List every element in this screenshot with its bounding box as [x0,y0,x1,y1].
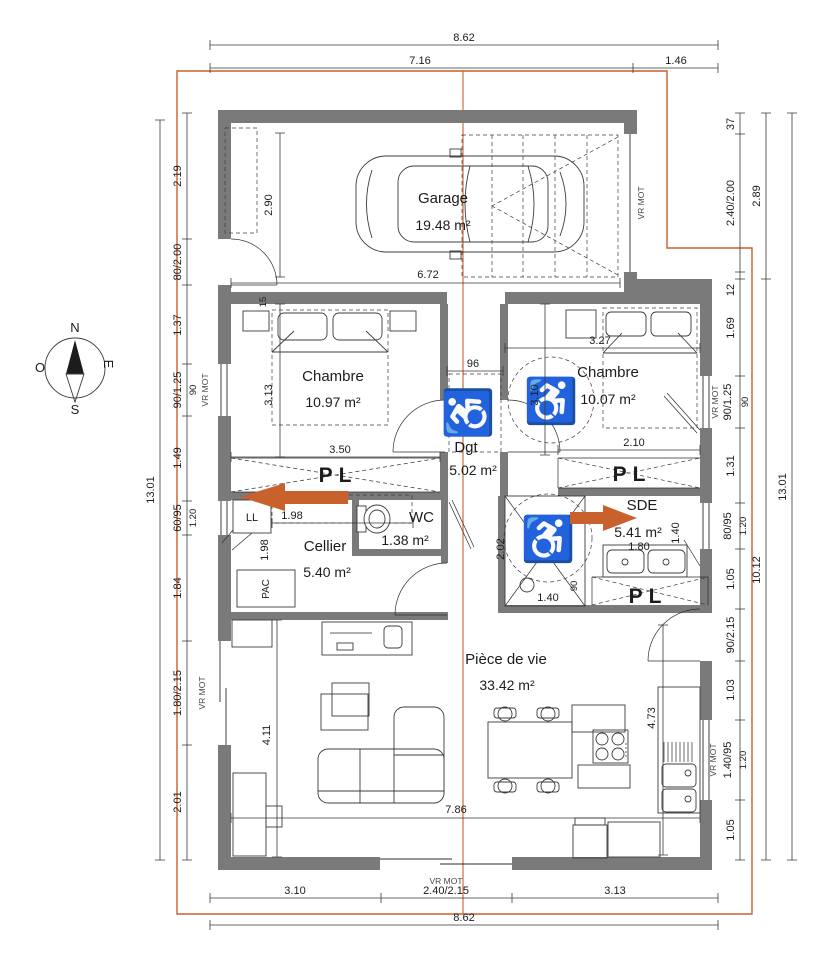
entry-door [648,609,700,661]
dim-left-8: 2.01 [172,791,184,812]
dim-right-outer: 13.01 [777,473,789,501]
dim-living-width: 7.86 [445,804,466,816]
dim-right-8: 90/2.15 [725,617,737,654]
dim-garage-height: 2.90 [263,194,275,215]
chambre2-window-leaf [664,393,700,433]
nightstand [566,310,596,338]
dim-right-mid-upper: 2.89 [751,185,763,206]
nightstand [243,311,269,331]
dim-wall-thickness: 15 [258,297,269,308]
heat-pump-label: PAC [261,579,272,599]
dim-left-outer: 13.01 [145,476,157,504]
window-chambre1 [221,364,227,416]
dim-bottom-left: 3.10 [284,885,305,897]
dim-sde-height: 2.02 [495,538,507,559]
dim-right-10: 1.40/95 [722,742,734,779]
compass-north: N [70,320,79,335]
sde-door-leaf [684,540,700,566]
dim-right-10-sub: 1.20 [738,751,749,770]
shutter-label: VR MOT [710,385,720,418]
dim-left-2: 1.37 [172,314,184,335]
dim-right-mid-lower: 10.12 [751,556,763,584]
dim-left-1: 80/2.00 [172,244,184,281]
nightstand [390,311,416,331]
dim-right-3: 1.69 [725,317,737,338]
window-cellier [221,501,227,535]
dim-right-0: 37 [725,118,737,130]
dim-shower-width: 1.40 [537,592,558,604]
compass-west: O [35,360,45,375]
chair [494,707,516,721]
room-label-chambre2: Chambre [577,364,639,381]
bay-window-left [220,641,226,745]
dim-right-4: 90/1.25 [722,384,734,421]
chair [494,779,516,793]
kitchen-counters [572,687,700,858]
dim-shower-depth: 90 [569,581,580,592]
closet-label: PL [629,585,668,608]
room-label-piece-de-vie: Pièce de vie [465,651,547,668]
shutter-label: VR MOT [200,373,210,406]
dim-garage-width: 6.72 [417,269,438,281]
dim-right-9: 1.03 [725,679,737,700]
shutter-label: VR MOT [197,676,207,709]
cellier-door [395,563,447,615]
bay-window-bottom [380,859,512,864]
dim-bottom-right: 3.13 [604,885,625,897]
dim-left-4: 1.49 [172,447,184,468]
dim-sde-door: 1.40 [670,522,682,543]
wheelchair-icon: ♿ [443,386,493,441]
dim-left-7: 1.80/2.15 [172,670,184,716]
dim-cellier-height: 1.98 [259,539,271,560]
compass-rose: N S O E [35,320,116,417]
dim-right-4-sub: 90 [740,397,751,408]
dim-chambre2-closet: 2.10 [623,437,644,449]
coffee-tables [321,683,369,730]
dim-chambre2-width: 3.27 [589,335,610,347]
dim-vanity-width: 1.80 [628,541,649,553]
closet-label: PL [319,464,358,487]
dim-top-total: 8.62 [453,32,474,44]
wheelchair-icon: ♿ [521,514,576,564]
sofa-icon [318,707,444,803]
arrow-left-icon [240,483,348,511]
window-chambre2 [703,376,709,428]
room-area-chambre2: 10.07 m² [580,391,636,407]
chambre1-door [393,400,445,452]
dim-left-3: 90/1.25 [172,372,184,409]
car-icon [356,149,584,259]
dim-bottom-center: 2.40/2.15 [423,885,469,897]
dim-top-right: 1.46 [665,55,686,67]
floor-plan-drawing: ♿ ♿ ♿ N S O E [0,0,822,960]
sink-icon [662,742,696,812]
dim-left-5: 60/95 [172,504,184,532]
desk-icon [322,622,412,655]
dim-chambre1-closet: 3.50 [329,444,350,456]
closet-label: PL [613,463,652,486]
dim-right-2: 12 [725,284,737,296]
dim-living-height: 4.11 [261,725,273,746]
washer-label: LL [246,512,258,524]
room-area-dgt: 5.02 m² [449,462,497,478]
cooktop-icon [593,730,628,763]
dim-cellier-width: 1.98 [281,510,302,522]
room-label-chambre1: Chambre [302,368,364,385]
dim-right-6-sub: 1.20 [738,517,749,536]
room-area-wc: 1.38 m² [381,532,429,548]
room-area-garage: 19.48 m² [415,217,471,233]
garage-side-door [231,239,277,285]
sideboard [232,620,272,647]
room-label-wc: WC [409,509,434,526]
dim-right-1: 2.40/2.00 [725,180,737,226]
dim-left-0: 2.19 [172,165,184,186]
dim-kitchen-height: 4.73 [646,707,658,728]
toilet-icon [357,505,390,533]
room-area-chambre1: 10.97 m² [305,394,361,410]
floor-plan-canvas: ♿ ♿ ♿ N S O E [0,0,822,960]
dining-table-icon [488,707,572,793]
compass-east: E [101,360,116,369]
dim-dgt-passage: 96 [467,358,479,370]
dim-top-left: 7.16 [409,55,430,67]
room-area-cellier: 5.40 m² [303,564,351,580]
chair [537,779,559,793]
window-sde [703,503,709,549]
dim-bottom-total: 8.62 [453,912,474,924]
dim-right-5: 1.31 [725,455,737,476]
chair [537,707,559,721]
tv-unit-shelf [266,806,282,827]
room-label-garage: Garage [418,190,468,207]
dim-chambre1-height: 3.13 [263,384,275,405]
shutter-label: VR MOT [708,743,718,776]
dim-right-11: 1.05 [725,819,737,840]
room-area-piece-de-vie: 33.42 m² [479,677,535,693]
tv-unit [233,773,266,856]
dim-left-5-sub: 1.20 [188,509,199,528]
room-label-sde: SDE [627,497,658,514]
wc-door [449,500,474,549]
room-label-dgt: Dgt [454,439,478,456]
shutter-label: VR MOT [636,186,646,219]
dim-right-7: 1.05 [725,568,737,589]
dim-left-6: 1.84 [172,577,184,598]
dim-right-6: 80/95 [722,512,734,540]
compass-south: S [71,402,80,417]
dim-chambre2-height: 3.10 [529,384,541,405]
dim-left-3-sub: 90 [188,385,199,396]
oven-icon [573,818,660,858]
room-area-sde: 5.41 m² [614,524,662,540]
room-label-cellier: Cellier [304,538,347,555]
